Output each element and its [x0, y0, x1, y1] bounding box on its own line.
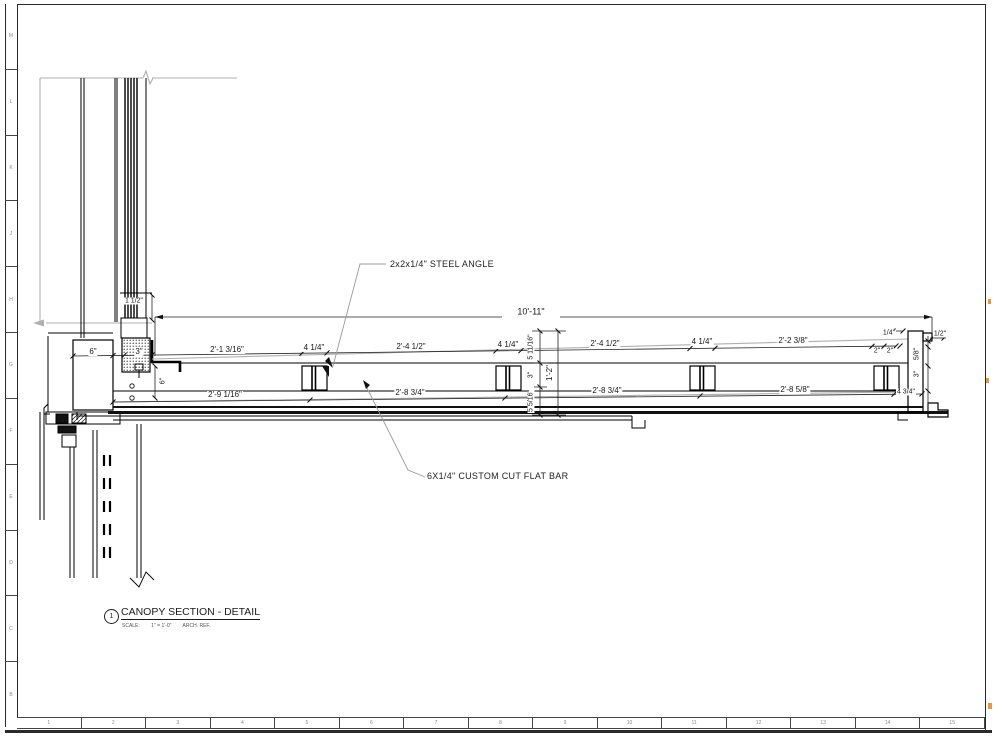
flat-bar-note: 6X1/4" CUSTOM CUT FLAT BAR [427, 471, 568, 481]
dim-mid-v-3: 1'-2" [546, 364, 554, 382]
dim-bottom-4: 4 3/4" [896, 389, 916, 396]
canopy-structure [77, 339, 948, 428]
dim-left-0: 1 1/2" [124, 298, 144, 305]
dim-mid-v-0: 5 11/16" [528, 333, 535, 360]
scale-value: 1" = 1'-0" [151, 623, 171, 629]
dim-left-1: 6" [160, 377, 167, 385]
window-head-detail [40, 412, 154, 587]
dim-overall: 10'-11" [516, 308, 545, 317]
dim-right-half: 1/2" [933, 331, 947, 338]
dim-right-two-a: 2" [873, 348, 881, 355]
dim-mid-v-1: 3" [528, 371, 535, 379]
dim-top-0: 6" [88, 348, 97, 356]
dim-right-three: 3" [914, 370, 921, 378]
dim-mid-v-2: 5 5/16" [528, 389, 535, 413]
detail-title-subtext: SCALE: 1" = 1'-0" ARCH. REF. [122, 623, 220, 629]
dim-right-quarter: 1/4" [882, 330, 896, 337]
dim-top-8: 2'-2 3/8" [777, 337, 808, 345]
dim-bottom-0: 2'-9 1/16" [207, 391, 243, 399]
dim-bottom-1: 2'-8 3/4" [394, 389, 425, 397]
dim-right-two-b: 2" [886, 348, 894, 355]
dim-top-7: 4 1/4" [691, 338, 714, 346]
detail-number: 1 [110, 613, 114, 620]
dim-top-5: 4 1/4" [497, 341, 520, 349]
annotation-leaders [333, 264, 425, 477]
dim-top-3: 4 1/4" [303, 344, 326, 352]
detail-number-bubble: 1 [104, 609, 119, 624]
scale-label: SCALE: [122, 623, 140, 629]
dimension-ticks [71, 293, 947, 418]
dim-top-1: 3" [134, 348, 143, 356]
dim-top-6: 2'-4 1/2" [589, 340, 620, 348]
flat-bar-leader-arrow [363, 380, 370, 389]
steel-angle-note: 2x2x1/4" STEEL ANGLE [390, 259, 494, 269]
dim-bottom-2: 2'-8 3/4" [591, 387, 622, 395]
dim-bottom-3: 2'-8 5/8" [779, 386, 810, 394]
wall-break-arrow [33, 320, 44, 327]
dim-top-2: 2'-1 3/16" [209, 346, 245, 354]
dim-right-five-eighths: 5/8" [914, 347, 921, 361]
dim-top-4: 2'-4 1/2" [395, 343, 426, 351]
wall-outline-gray [40, 71, 237, 323]
detail-title: CANOPY SECTION - DETAIL [121, 606, 260, 620]
drawing-canvas [0, 0, 995, 740]
arch-ref-label: ARCH. REF. [183, 623, 211, 629]
drawing-sheet: M L K J H G F E D C B 1 2 3 4 5 6 7 8 9 … [0, 0, 995, 740]
